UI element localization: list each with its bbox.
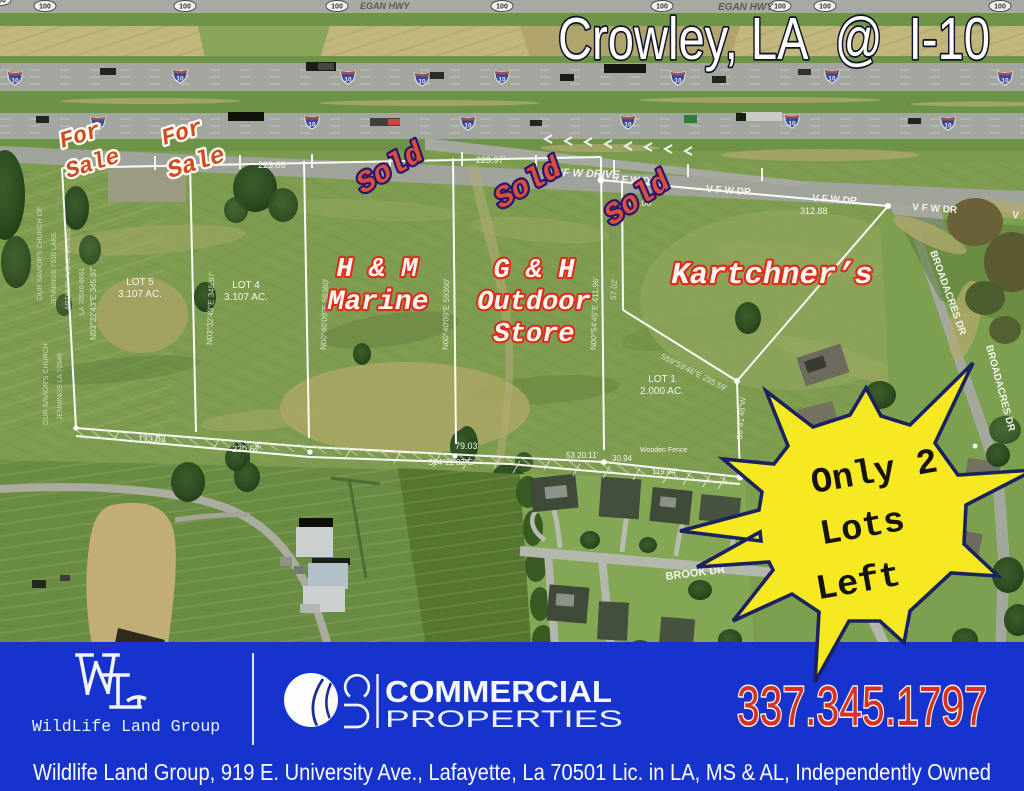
- svg-text:Outdoor: Outdoor: [477, 288, 590, 318]
- svg-text:JENNINGS LA 70546: JENNINGS LA 70546: [57, 353, 64, 420]
- svg-text:JENNINGS 7910 LAKE: JENNINGS 7910 LAKE: [51, 232, 58, 305]
- svg-text:G & H: G & H: [493, 256, 575, 286]
- svg-text:337.345.1797: 337.345.1797: [737, 674, 987, 737]
- svg-text:119.04': 119.04': [652, 467, 678, 476]
- svg-text:223.97': 223.97': [476, 155, 506, 165]
- svg-text:LOT 1: LOT 1: [648, 374, 676, 385]
- svg-text:N03°32'43"E 345.97': N03°32'43"E 345.97': [89, 266, 98, 340]
- svg-text:S84°22'32"E: S84°22'32"E: [428, 458, 473, 467]
- svg-text:30.94: 30.94: [612, 454, 633, 463]
- svg-text:223.88: 223.88: [258, 160, 286, 170]
- svg-text:N00°40'09"E 59360': N00°40'09"E 59360': [441, 278, 451, 350]
- svg-text:PROPERTIES: PROPERTIES: [385, 706, 623, 733]
- svg-text:Wildlife Land Group, 919 E. Un: Wildlife Land Group, 919 E. University A…: [33, 759, 991, 785]
- svg-text:OUR SAVIOR'S CHURCH: OUR SAVIOR'S CHURCH: [43, 343, 50, 425]
- svg-text:220.67': 220.67': [232, 444, 262, 454]
- svg-text:LOT 5: LOT 5: [126, 277, 154, 288]
- svg-text:312.88: 312.88: [800, 206, 828, 216]
- svg-text:EGAN HWY: EGAN HWY: [360, 1, 410, 11]
- svg-text:Kartchner’s: Kartchner’s: [671, 259, 872, 293]
- svg-text:LOT 4: LOT 4: [232, 280, 260, 291]
- svg-text:57.02': 57.02': [609, 278, 619, 300]
- svg-text:Crowley, LA @ I-10: Crowley, LA @ I-10: [558, 6, 990, 72]
- svg-text:173.03: 173.03: [138, 434, 166, 444]
- svg-text:3.107 AC.: 3.107 AC.: [224, 292, 268, 303]
- svg-text:100: 100: [0, 0, 6, 4]
- svg-text:Store: Store: [493, 320, 574, 350]
- svg-text:COMMERCIAL: COMMERCIAL: [385, 674, 612, 709]
- svg-text:LA 70546-8661: LA 70546-8661: [79, 267, 86, 315]
- svg-text:WildLife Land Group: WildLife Land Group: [32, 717, 220, 736]
- svg-text:3.107 AC.: 3.107 AC.: [118, 289, 162, 300]
- svg-text:ARTHUR AVE JENNINGS: ARTHUR AVE JENNINGS: [65, 228, 72, 310]
- svg-text:79.03: 79.03: [455, 441, 478, 451]
- svg-text:H & M: H & M: [336, 255, 418, 285]
- svg-text:V: V: [1012, 210, 1020, 221]
- svg-text:Marine: Marine: [327, 287, 429, 318]
- svg-text:Wooden Fence: Wooden Fence: [640, 447, 687, 454]
- svg-text:53 20.11': 53 20.11': [566, 451, 599, 460]
- svg-text:OUR SAVIOR'S CHURCH OF: OUR SAVIOR'S CHURCH OF: [37, 207, 44, 300]
- svg-text:2.000 AC.: 2.000 AC.: [640, 386, 684, 397]
